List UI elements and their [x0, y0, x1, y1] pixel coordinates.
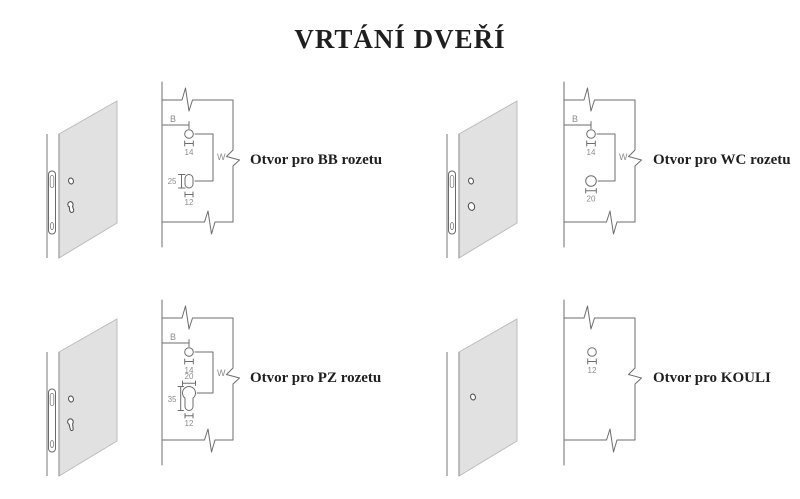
top-hole	[587, 130, 596, 139]
svg-text:12: 12	[588, 366, 597, 375]
svg-text:12: 12	[185, 198, 194, 207]
drawing-frame	[564, 300, 642, 465]
dim-edge-offset: B	[162, 332, 189, 347]
top-break-line	[564, 306, 635, 329]
svg-text:W: W	[619, 152, 628, 162]
svg-text:B: B	[170, 332, 176, 342]
dim-spacing: W	[195, 352, 226, 393]
right-break-line	[227, 100, 240, 222]
top-hole	[185, 348, 194, 357]
door-illustration-bb	[40, 86, 140, 264]
dim-edge-offset: B	[162, 114, 189, 129]
svg-text:14: 14	[587, 148, 596, 157]
top-break-line	[162, 306, 233, 329]
svg-text:14: 14	[185, 148, 194, 157]
svg-text:12: 12	[185, 419, 194, 428]
door-panel	[59, 319, 117, 476]
door-illustration-kouli	[440, 304, 540, 482]
section-pz: B 14 W 20 35 12	[40, 296, 400, 496]
svg-text:W: W	[217, 368, 226, 378]
right-break-line	[629, 100, 642, 222]
knob-hole-circle	[588, 348, 597, 357]
drilling-drawing-pz: B 14 W 20 35 12	[155, 296, 255, 468]
dim-top-hole: 14	[587, 141, 596, 157]
drawing-frame	[162, 82, 240, 247]
bottom-break-line	[564, 211, 635, 234]
section-label-bb: Otvor pro BB rozetu	[250, 152, 382, 169]
dim-bottom-hole-height: 25	[168, 175, 185, 189]
lock-faceplate	[449, 171, 456, 234]
door-panel	[59, 101, 117, 258]
top-hole	[185, 130, 194, 139]
dim-cylinder-height: 35	[168, 387, 184, 411]
door-panel	[459, 319, 517, 476]
right-break-line	[227, 318, 240, 440]
drilling-drawing-wc: B 14 W 20	[557, 78, 657, 250]
dim-edge-offset: B	[564, 114, 591, 129]
dim-cylinder-slot-width: 12	[185, 414, 194, 429]
dim-bottom-hole-width: 12	[185, 192, 194, 207]
door-illustration-wc	[440, 86, 540, 264]
dim-cylinder-width: 20	[183, 372, 196, 386]
drilling-diagram-page: VRTÁNÍ DVEŘÍ	[0, 0, 800, 499]
door-panel	[459, 101, 517, 258]
bottom-hole	[586, 176, 597, 187]
cylinder-hole	[183, 386, 196, 410]
section-bb: B 14 W 25 12 Otvor pro BB rozetu	[40, 78, 400, 278]
bottom-break-line	[162, 211, 233, 234]
dim-bottom-hole: 20	[586, 189, 597, 204]
right-break-line	[629, 318, 642, 440]
lock-faceplate	[49, 389, 56, 452]
svg-text:20: 20	[587, 195, 596, 204]
svg-text:B: B	[572, 114, 578, 124]
bottom-break-line	[162, 429, 233, 452]
dim-spacing: W	[597, 134, 628, 181]
section-label-kouli: Otvor pro KOULI	[653, 370, 771, 387]
dim-hole: 12	[588, 359, 597, 375]
drawing-frame	[564, 82, 642, 247]
svg-text:B: B	[170, 114, 176, 124]
top-break-line	[564, 88, 635, 111]
svg-text:25: 25	[168, 177, 177, 186]
drilling-drawing-bb: B 14 W 25 12	[155, 78, 255, 250]
section-wc: B 14 W 20 Otvor pro WC rozetu	[440, 78, 800, 278]
bottom-break-line	[564, 429, 635, 452]
svg-text:20: 20	[185, 372, 194, 381]
page-title: VRTÁNÍ DVEŘÍ	[0, 24, 800, 55]
dim-top-hole: 14	[185, 141, 194, 157]
section-kouli: 12 Otvor pro KOULI	[440, 296, 800, 496]
door-illustration-pz	[40, 304, 140, 482]
bottom-hole	[185, 175, 193, 189]
svg-text:W: W	[217, 152, 226, 162]
drilling-drawing-kouli: 12	[557, 296, 657, 468]
dim-spacing: W	[195, 134, 226, 181]
top-break-line	[162, 88, 233, 111]
svg-text:35: 35	[168, 395, 177, 404]
section-label-wc: Otvor pro WC rozetu	[653, 152, 791, 169]
section-label-pz: Otvor pro PZ rozetu	[250, 370, 381, 387]
lock-faceplate	[49, 171, 56, 234]
drawing-frame	[162, 300, 240, 465]
